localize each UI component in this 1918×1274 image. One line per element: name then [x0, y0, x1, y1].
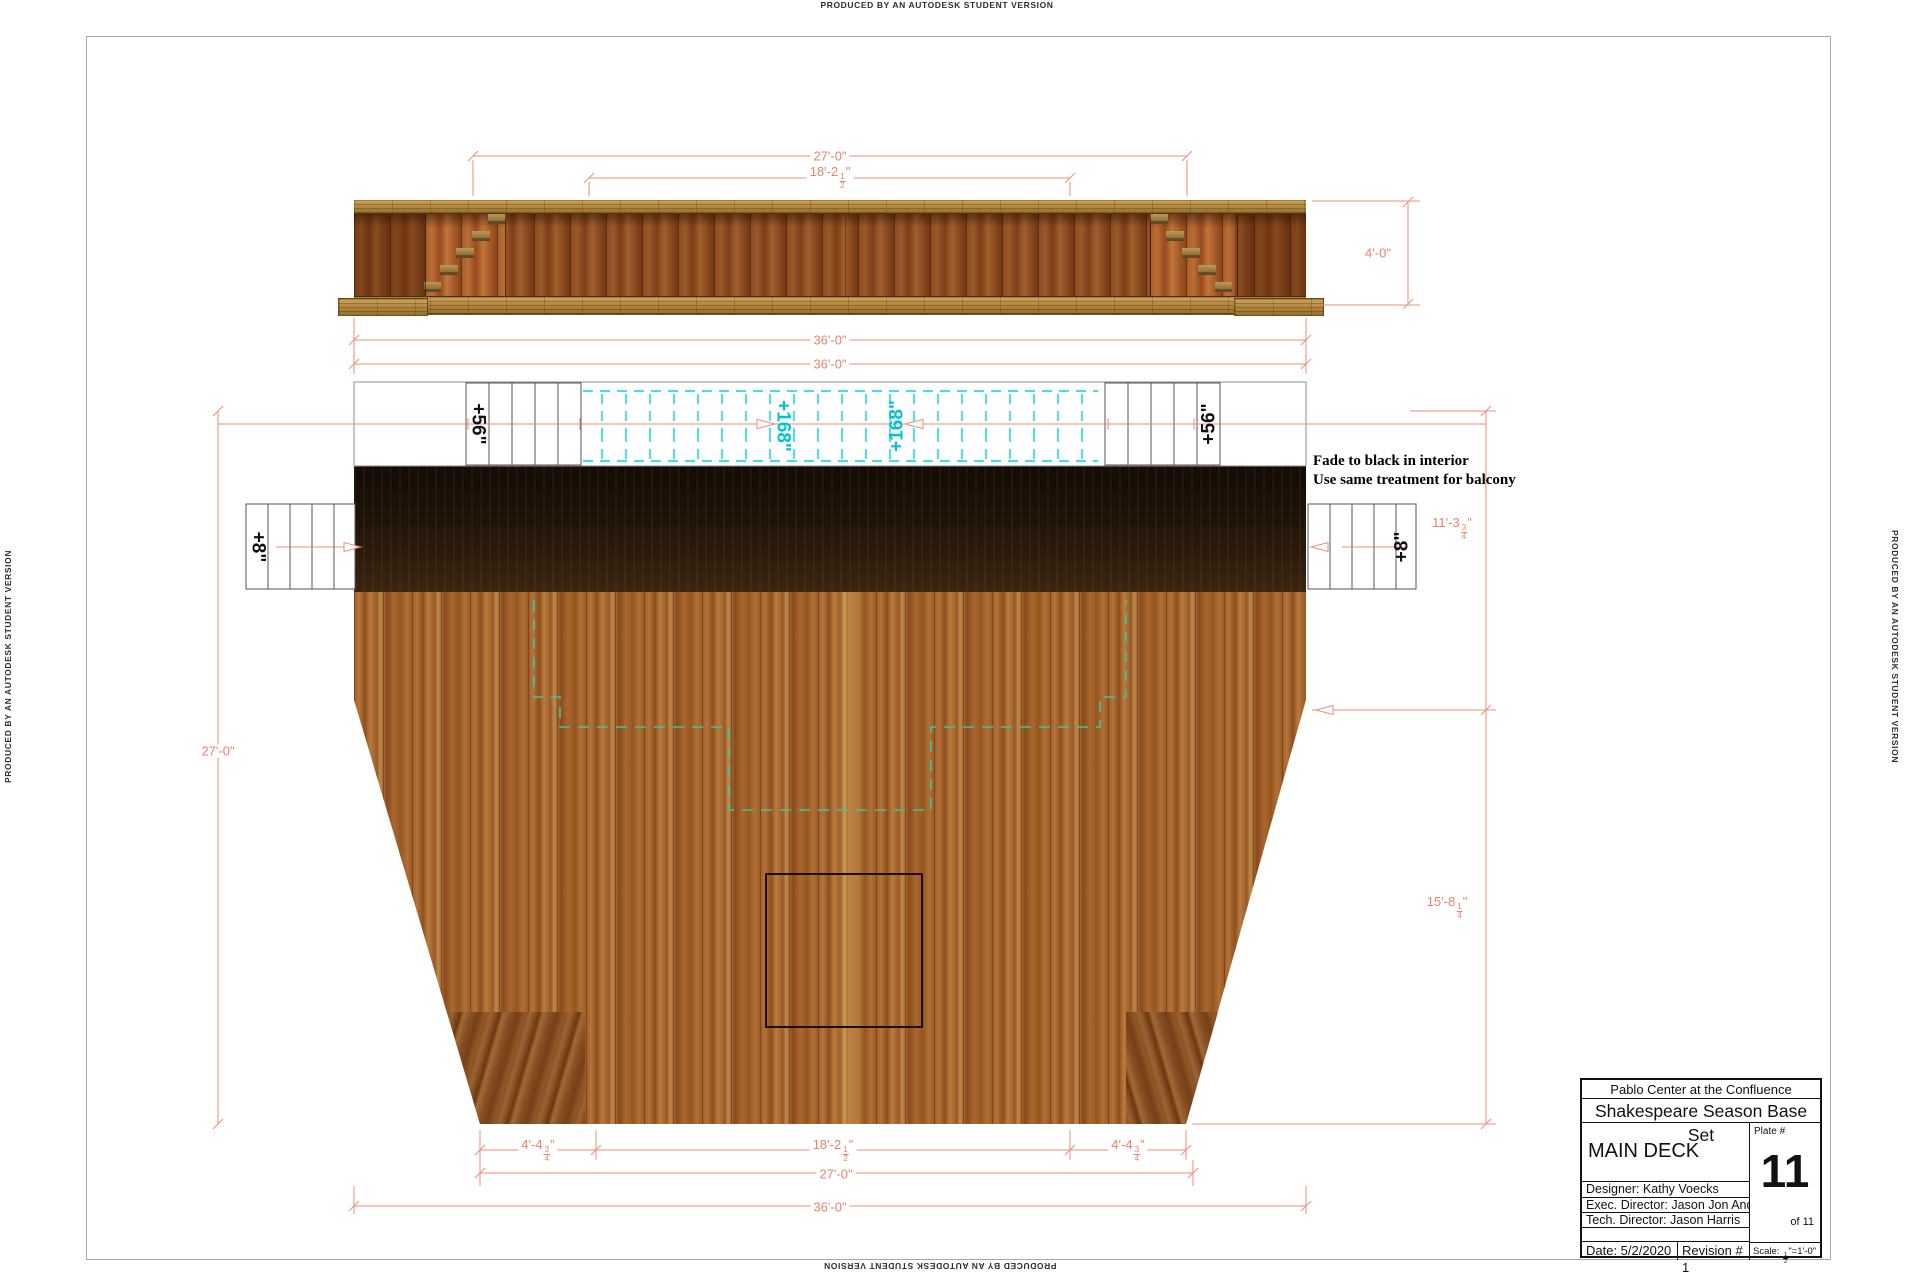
title-block-date: Date: 5/2/2020 [1582, 1242, 1678, 1260]
dimension-lines [213, 151, 1496, 1214]
title-block-sheet-title: MAIN DECK [1582, 1123, 1750, 1182]
title-block-venue: Pablo Center at the Confluence [1582, 1080, 1820, 1099]
title-block: Pablo Center at the Confluence Shakespea… [1580, 1078, 1822, 1258]
side-stair-left-height-label: +8" [249, 532, 268, 563]
dim-plan-depth-27ft: 27'-0" [198, 745, 237, 758]
dim-bottom-36ft: 36'-0" [810, 1201, 849, 1214]
side-stair-right-height-label: +8" [1393, 532, 1412, 563]
title-block-production: Shakespeare Season Base Set [1582, 1099, 1820, 1123]
deck-hidden-edge-line [534, 600, 1126, 810]
dim-plan-right-11ft: 11'-334" [1429, 516, 1475, 542]
interior-right-height-label: +168" [888, 400, 907, 452]
interior-left-height-label: +168" [774, 400, 793, 452]
title-block-exec-director: Exec. Director: Jason Jon Anderson [1582, 1198, 1750, 1213]
dim-bottom-4ft-right: 4'-434" [1108, 1138, 1147, 1164]
dim-elev-18ft: 18'-212" [807, 165, 854, 191]
title-block-designer: Designer: Kathy Voecks [1582, 1182, 1750, 1198]
dim-plan-width-36ft: 36'-0" [810, 358, 849, 371]
treatment-note-line1: Fade to black in interior [1313, 452, 1516, 471]
dim-elev-width-36ft: 36'-0" [810, 334, 849, 347]
balcony-right-height-label: +56" [1200, 403, 1219, 444]
dim-bottom-27ft: 27'-0" [816, 1168, 855, 1181]
dim-elev-height: 4'-0" [1362, 247, 1394, 260]
drawing-sheet: PRODUCED BY AN AUTODESK STUDENT VERSION … [0, 0, 1918, 1274]
title-block-spacer [1582, 1228, 1750, 1242]
balcony-dashed-lines [583, 390, 1098, 462]
title-block-scale: Scale: 12"=1'-0" [1750, 1242, 1820, 1260]
balcony-left-height-label: +56" [469, 403, 488, 444]
title-block-revision: Revision # 1 [1678, 1242, 1750, 1260]
treatment-note-line2: Use same treatment for balcony [1313, 471, 1516, 490]
dim-bottom-18ft: 18'-212" [810, 1138, 857, 1164]
dim-elev-27ft: 27'-0" [810, 150, 849, 163]
title-block-plate-of: of 11 [1750, 1216, 1814, 1228]
dim-plan-right-15ft: 15'-814" [1424, 895, 1471, 921]
treatment-note: Fade to black in interior Use same treat… [1313, 452, 1516, 490]
dim-bottom-4ft-left: 4'-434" [518, 1138, 557, 1164]
title-block-plate-number: 11 [1750, 1132, 1820, 1210]
title-block-tech-director: Tech. Director: Jason Harris [1582, 1213, 1750, 1228]
